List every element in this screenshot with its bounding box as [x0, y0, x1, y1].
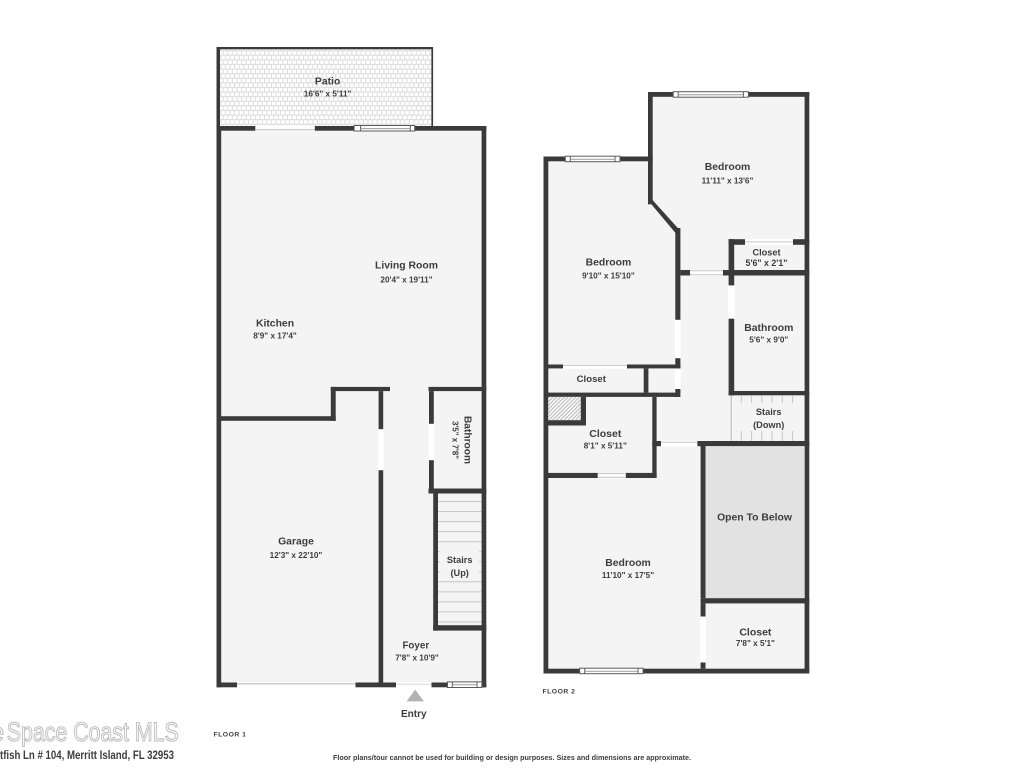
svg-text:9'10" x 15'10": 9'10" x 15'10"	[582, 272, 635, 281]
svg-text:5'6" x 2'1": 5'6" x 2'1"	[746, 258, 788, 268]
svg-text:5'6" x 9'0": 5'6" x 9'0"	[749, 336, 788, 345]
svg-text:8'9" x 17'4": 8'9" x 17'4"	[253, 332, 297, 341]
svg-text:20'4" x 19'11": 20'4" x 19'11"	[380, 276, 432, 285]
svg-text:Closet: Closet	[739, 627, 772, 639]
svg-text:Closet: Closet	[577, 374, 607, 385]
svg-text:8'1" x 5'11": 8'1" x 5'11"	[584, 442, 627, 451]
svg-text:(Down): (Down)	[753, 420, 784, 430]
svg-text:Bathroom: Bathroom	[462, 416, 473, 464]
svg-text:Space Coast MLS: Space Coast MLS	[7, 717, 179, 747]
svg-text:3'5" x 7'8": 3'5" x 7'8"	[451, 421, 460, 459]
svg-text:Kitchen: Kitchen	[256, 319, 294, 330]
svg-text:12'3" x 22'10": 12'3" x 22'10"	[270, 551, 323, 560]
svg-text:Entry: Entry	[401, 709, 427, 720]
svg-text:FLOOR 2: FLOOR 2	[543, 688, 576, 695]
svg-text:Patio: Patio	[315, 77, 340, 88]
svg-text:Floor plans/tour cannot be use: Floor plans/tour cannot be used for buil…	[333, 753, 691, 762]
svg-text:Stairs: Stairs	[447, 555, 473, 565]
svg-text:Living Room: Living Room	[375, 261, 438, 272]
svg-text:Bedroom: Bedroom	[605, 558, 651, 569]
svg-text:Bedroom: Bedroom	[705, 162, 751, 173]
svg-text:7'8" x 10'9": 7'8" x 10'9"	[395, 654, 439, 663]
svg-text:16'6" x 5'11": 16'6" x 5'11"	[304, 90, 352, 99]
svg-text:11'10" x 17'5": 11'10" x 17'5"	[602, 571, 654, 580]
svg-text:FLOOR 1: FLOOR 1	[214, 731, 247, 738]
svg-text:Open To Below: Open To Below	[717, 513, 793, 524]
svg-text:(Up): (Up)	[451, 568, 469, 578]
svg-text:7'8" x 5'1": 7'8" x 5'1"	[736, 639, 775, 648]
svg-text:Bathroom: Bathroom	[744, 323, 793, 334]
svg-text:Garage: Garage	[278, 537, 314, 548]
svg-text:Bedroom: Bedroom	[586, 258, 632, 269]
svg-text:11'11" x 13'6": 11'11" x 13'6"	[702, 177, 754, 186]
svg-text:Closet: Closet	[589, 428, 622, 440]
svg-text:Foyer: Foyer	[402, 640, 429, 651]
svg-text:tfish Ln # 104, Merritt Island: tfish Ln # 104, Merritt Island, FL 32953	[0, 750, 174, 762]
svg-text:Stairs: Stairs	[756, 407, 782, 417]
svg-text:e: e	[0, 717, 4, 747]
svg-text:Closet: Closet	[752, 247, 780, 257]
